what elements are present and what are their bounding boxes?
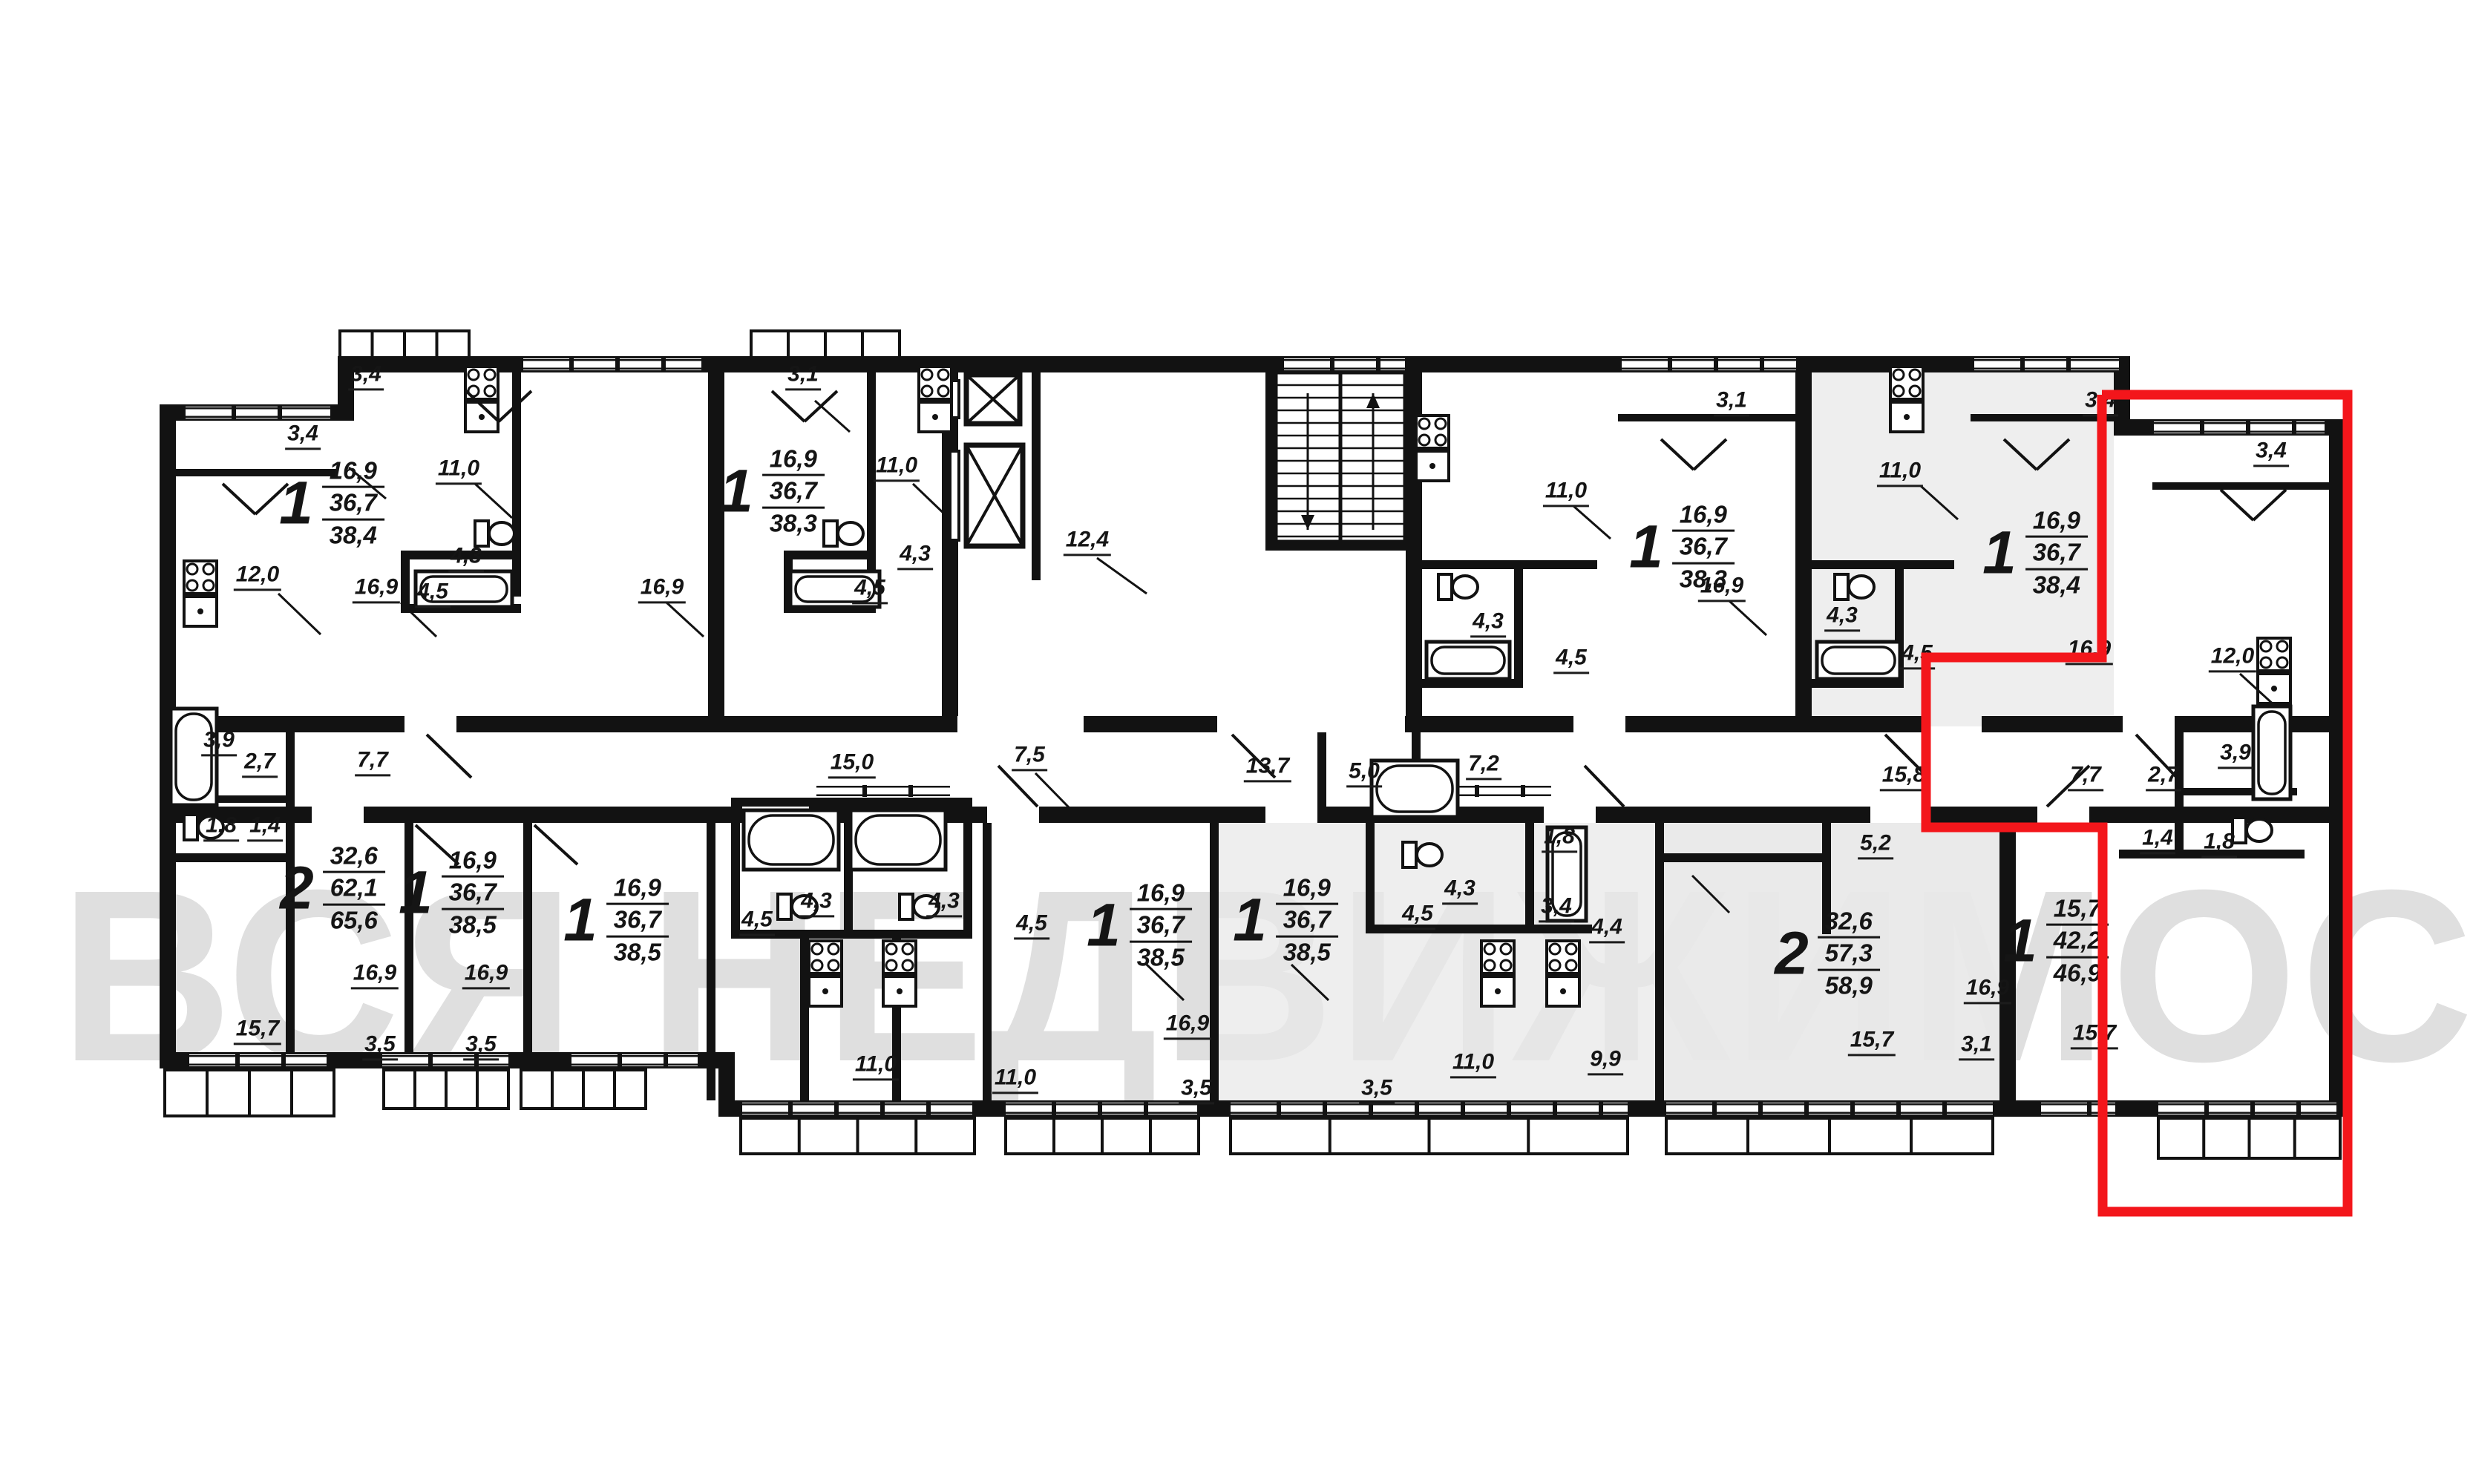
floor-plan-page: ВСЯ НЕДВИЖИМОСТЬ 3,43,411,03,111,012,016… bbox=[0, 0, 2473, 1484]
red-highlight-outline bbox=[1926, 395, 2348, 1212]
highlight-layer bbox=[0, 0, 2473, 1484]
